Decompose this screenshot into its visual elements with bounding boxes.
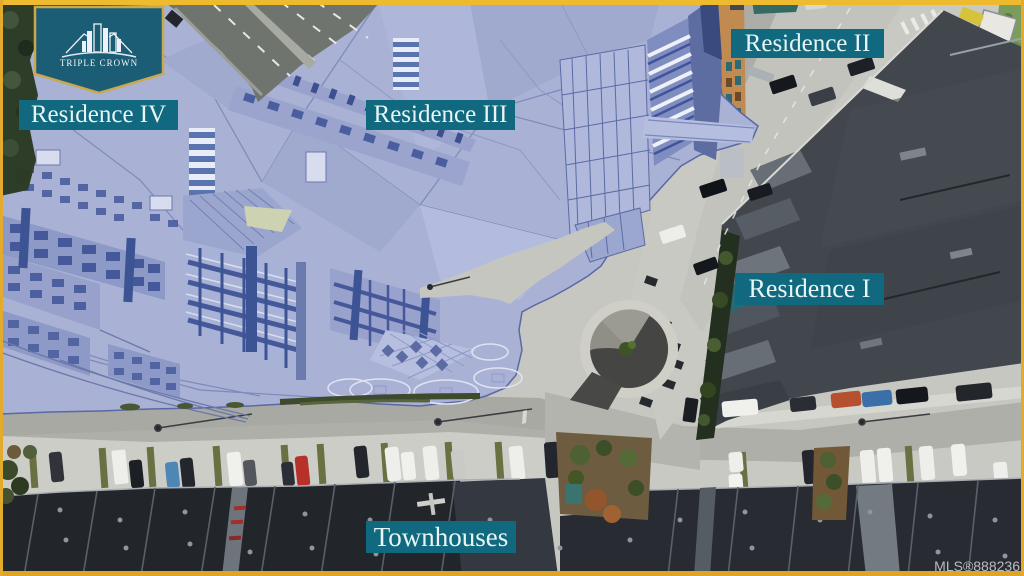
svg-text:TRIPLE CROWN: TRIPLE CROWN [60, 58, 138, 68]
